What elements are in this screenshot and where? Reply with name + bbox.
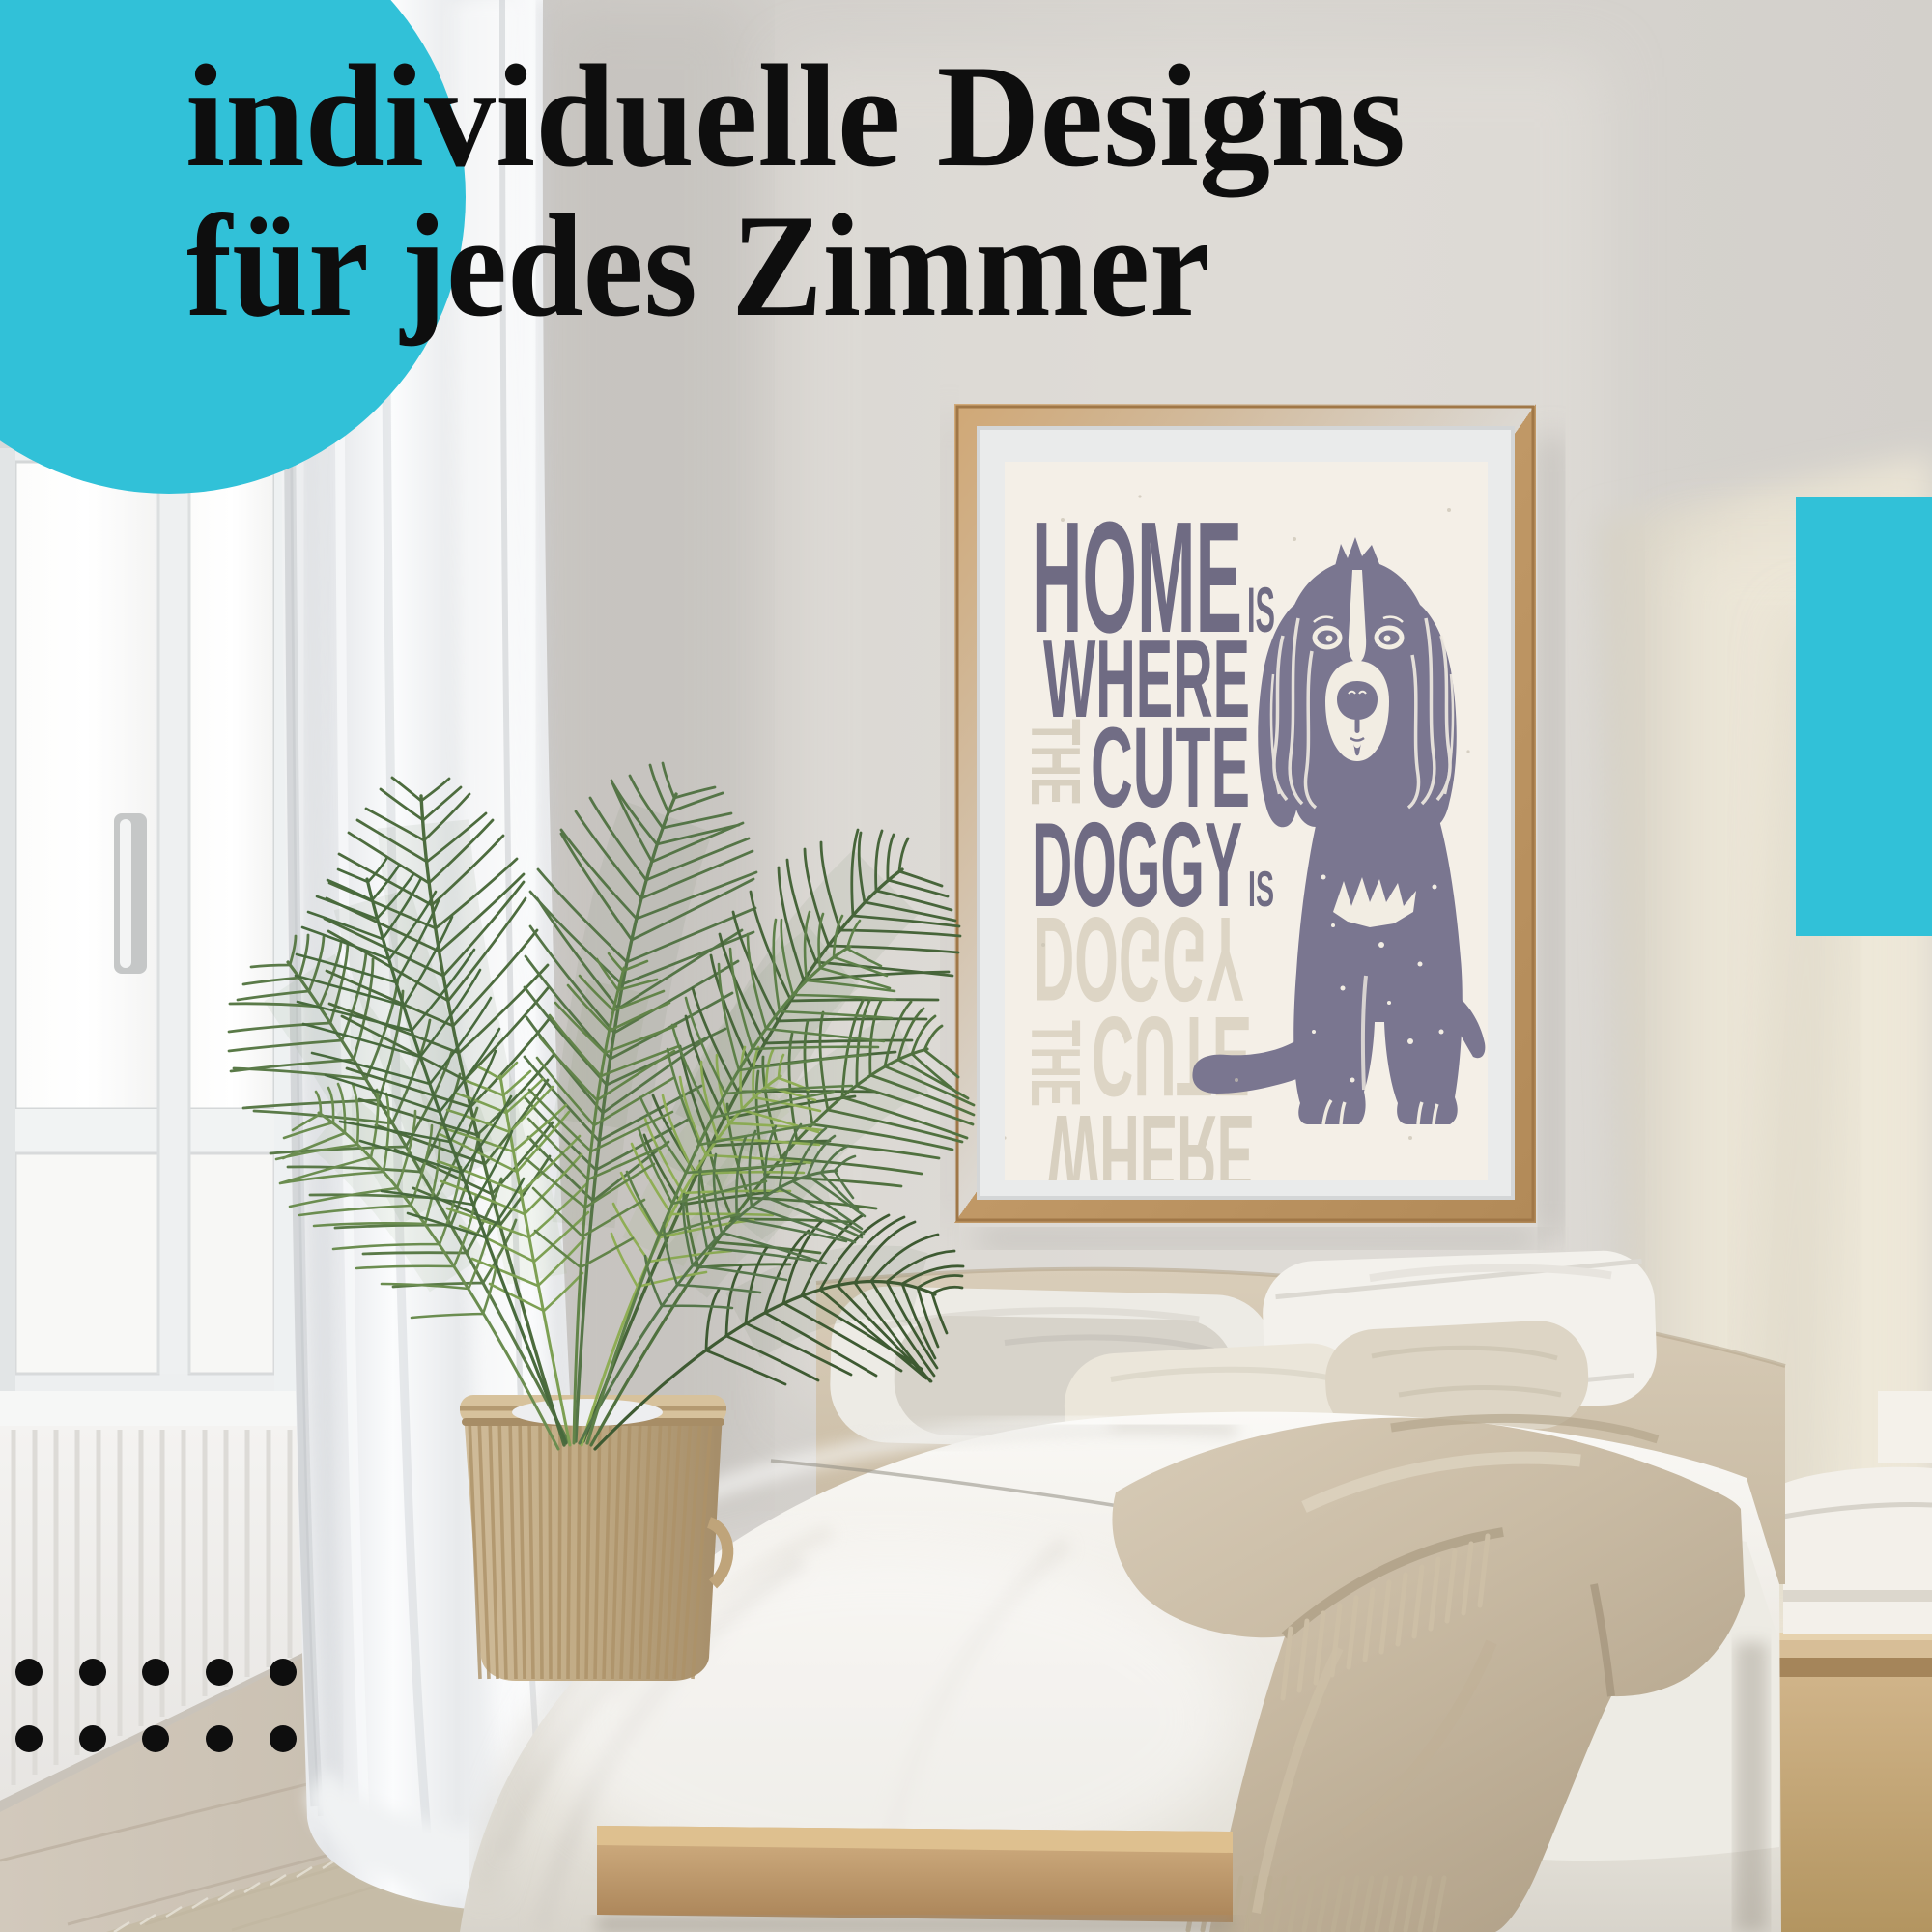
svg-text:IS: IS: [1248, 862, 1274, 918]
svg-text:THE: THE: [1016, 719, 1094, 806]
svg-text:individuelle Designs: individuelle Designs: [185, 35, 1406, 198]
svg-text:für jedes Zimmer: für jedes Zimmer: [186, 185, 1210, 347]
svg-text:IS: IS: [1247, 574, 1275, 645]
